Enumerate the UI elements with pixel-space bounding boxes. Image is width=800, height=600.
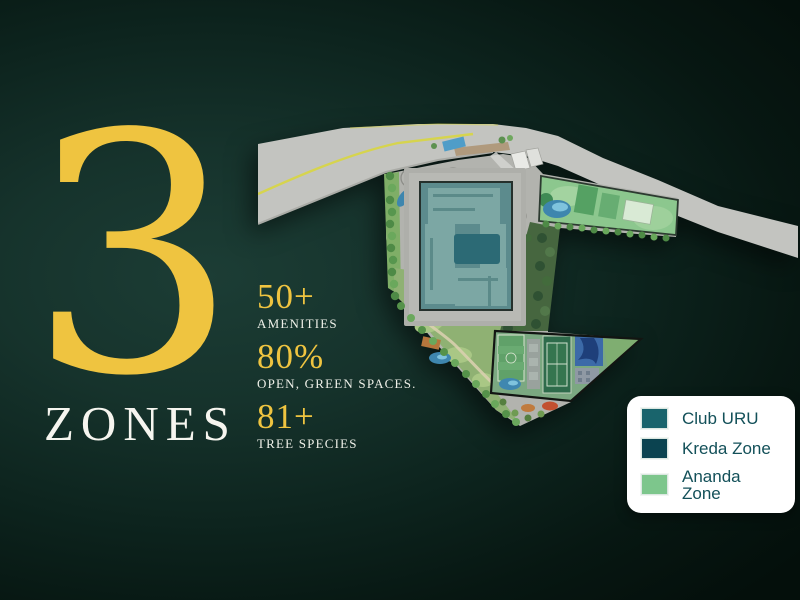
map-legend: Club URU Kreda Zone Ananda Zone [627,396,795,513]
kreda-zone-color-swatch [641,438,668,459]
zones-label: ZONES [44,399,237,448]
legend-label: Ananda Zone [682,468,783,502]
club-uru-pool [454,234,500,264]
legend-label: Kreda Zone [682,440,771,457]
legend-item-kreda-zone: Kreda Zone [641,438,783,459]
club-uru-building [425,188,507,306]
zones-count: 3 [28,128,238,385]
legend-label: Club URU [682,410,759,427]
club-uru-zone [404,168,526,326]
legend-item-ananda-zone: Ananda Zone [641,468,783,502]
club-uru-color-swatch [641,408,668,429]
hero-banner: 3 ZONES 50+ AMENITIES 80% OPEN, GREEN SP… [0,0,800,600]
legend-item-club-uru: Club URU [641,408,783,429]
football-field [498,335,524,381]
ananda-building [622,200,653,225]
ananda-zone-color-swatch [641,474,668,495]
